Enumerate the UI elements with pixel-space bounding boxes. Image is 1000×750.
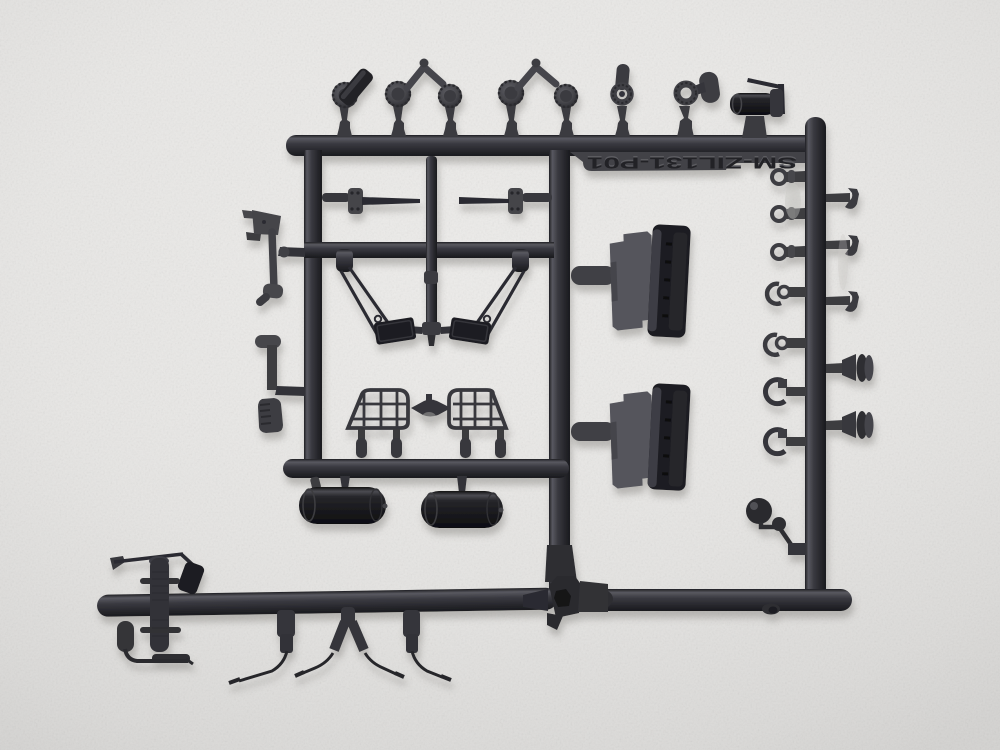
svg-text:SM-ZIL131-P01: SM-ZIL131-P01: [586, 153, 797, 170]
